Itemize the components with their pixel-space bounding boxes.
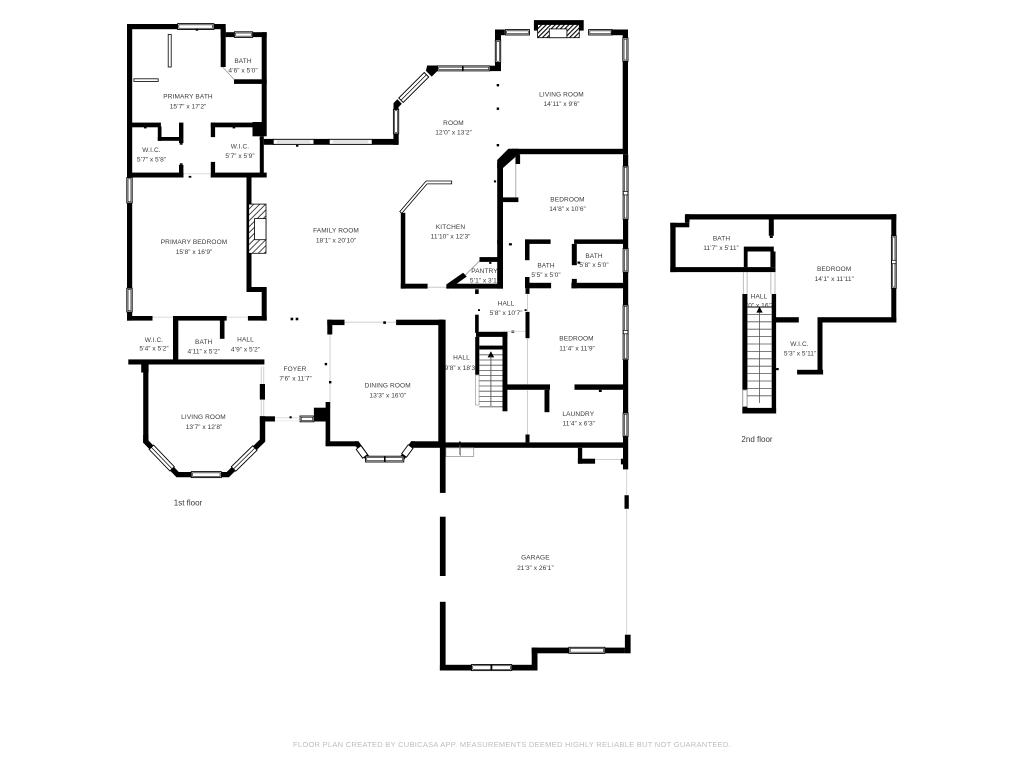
svg-text:PRIMARY BEDROOM: PRIMARY BEDROOM xyxy=(161,239,228,246)
svg-text:ROOM: ROOM xyxy=(443,120,464,127)
svg-text:BATH: BATH xyxy=(537,263,555,270)
svg-text:5’8” x 10’7”: 5’8” x 10’7” xyxy=(490,310,523,317)
svg-text:4’11” x 5’2”: 4’11” x 5’2” xyxy=(188,349,220,356)
svg-text:HALL: HALL xyxy=(237,337,254,344)
svg-text:KITCHEN: KITCHEN xyxy=(436,224,466,231)
svg-text:14’1” x 11’11”: 14’1” x 11’11” xyxy=(815,276,854,283)
svg-text:BATH: BATH xyxy=(234,58,252,65)
svg-text:18’1” x 20’10”: 18’1” x 20’10” xyxy=(316,238,356,245)
svg-text:HALL: HALL xyxy=(498,301,515,308)
svg-text:W.I.C.: W.I.C. xyxy=(231,144,249,151)
svg-text:7’6” x 11’7”: 7’6” x 11’7” xyxy=(279,376,311,383)
svg-text:5’7” x 5’9”: 5’7” x 5’9” xyxy=(225,153,254,160)
svg-text:BEDROOM: BEDROOM xyxy=(559,336,593,343)
svg-text:5’7” x 5’8”: 5’7” x 5’8” xyxy=(137,157,166,164)
svg-text:11’4” x 11’9”: 11’4” x 11’9” xyxy=(559,346,595,353)
svg-text:5’8” x 5’0”: 5’8” x 5’0” xyxy=(579,262,608,269)
svg-text:BATH: BATH xyxy=(195,339,213,346)
svg-text:5’3” x 5’11”: 5’3” x 5’11” xyxy=(784,351,816,358)
svg-text:12’0” x 13’2”: 12’0” x 13’2” xyxy=(435,130,472,137)
svg-text:21’3” x 26’1”: 21’3” x 26’1” xyxy=(517,565,554,572)
svg-text:1st floor: 1st floor xyxy=(174,499,203,508)
svg-text:13’7” x 12’8”: 13’7” x 12’8” xyxy=(186,424,223,431)
svg-text:DINING ROOM: DINING ROOM xyxy=(365,383,411,390)
svg-text:4’9” x 5’2”: 4’9” x 5’2” xyxy=(231,347,260,354)
svg-text:5’1” x 3’1”: 5’1” x 3’1” xyxy=(470,278,499,285)
svg-text:PANTRY: PANTRY xyxy=(471,268,498,275)
svg-text:LIVING ROOM: LIVING ROOM xyxy=(539,92,584,99)
svg-text:15’7” x 17’2”: 15’7” x 17’2” xyxy=(170,104,207,111)
svg-text:FAMILY ROOM: FAMILY ROOM xyxy=(313,228,359,235)
svg-text:9’8” x 18’3”: 9’8” x 18’3” xyxy=(445,365,478,372)
svg-text:HALL: HALL xyxy=(453,355,470,362)
svg-text:FOYER: FOYER xyxy=(284,366,307,373)
svg-text:5’5” x 5’0”: 5’5” x 5’0” xyxy=(531,272,560,279)
svg-text:BATH: BATH xyxy=(585,253,603,260)
svg-text:BATH: BATH xyxy=(713,236,731,243)
svg-text:FLOOR PLAN CREATED BY CUBICASA: FLOOR PLAN CREATED BY CUBICASA APP. MEAS… xyxy=(293,740,731,749)
svg-text:HALL: HALL xyxy=(751,294,768,301)
svg-text:5’4” x 5’2”: 5’4” x 5’2” xyxy=(139,346,168,353)
svg-text:2nd floor: 2nd floor xyxy=(741,435,772,444)
svg-text:4’6” x 5’0”: 4’6” x 5’0” xyxy=(228,68,257,75)
svg-text:14’11” x 9’6”: 14’11” x 9’6” xyxy=(543,101,579,108)
svg-text:W.I.C.: W.I.C. xyxy=(142,147,160,154)
svg-text:BEDROOM: BEDROOM xyxy=(817,266,851,273)
svg-text:PRIMARY BATH: PRIMARY BATH xyxy=(163,94,213,101)
svg-text:LIVING ROOM: LIVING ROOM xyxy=(181,414,226,421)
svg-text:W.I.C.: W.I.C. xyxy=(145,337,163,344)
svg-text:15’8” x 16’9”: 15’8” x 16’9” xyxy=(176,249,213,256)
svg-text:LAUNDRY: LAUNDRY xyxy=(562,411,594,418)
svg-text:W.I.C.: W.I.C. xyxy=(790,341,808,348)
svg-text:11’4” x 6’3”: 11’4” x 6’3” xyxy=(563,421,595,428)
svg-text:11’7” x 5’11”: 11’7” x 5’11” xyxy=(703,245,739,252)
svg-text:BEDROOM: BEDROOM xyxy=(550,197,584,204)
svg-text:13’3” x 16’0”: 13’3” x 16’0” xyxy=(369,393,406,400)
svg-text:GARAGE: GARAGE xyxy=(521,555,550,562)
svg-text:11’10” x 12’3”: 11’10” x 12’3” xyxy=(431,234,471,241)
svg-text:14’8” x 10’6”: 14’8” x 10’6” xyxy=(549,206,586,213)
